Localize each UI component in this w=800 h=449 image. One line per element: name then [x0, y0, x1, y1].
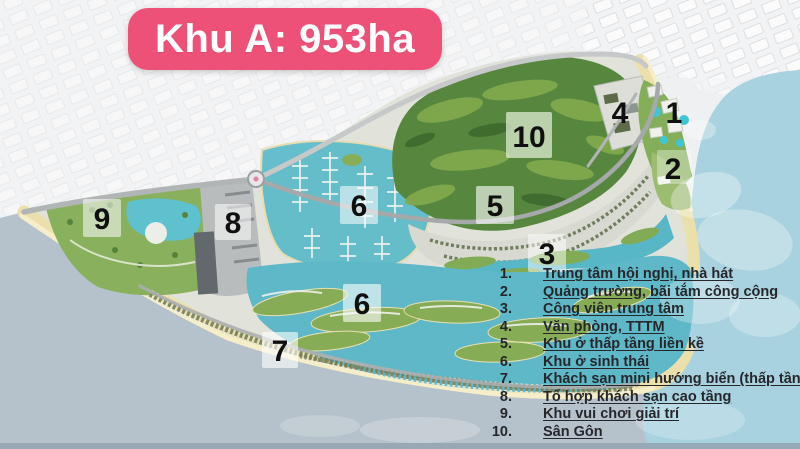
map-marker-8: 8	[225, 207, 242, 240]
legend-item-number: 1.	[484, 266, 512, 282]
legend: 1. Trung tâm hội nghị, nhà hát 2. Quảng …	[484, 266, 796, 441]
legend-item-label: Công viên trung tâm	[543, 301, 684, 317]
legend-item: 2. Quảng trường, bãi tắm công cộng	[484, 284, 796, 302]
legend-item-label: Quảng trường, bãi tắm công cộng	[543, 284, 778, 300]
area-title-text: Khu A: 953ha	[155, 17, 415, 62]
legend-item-label: Trung tâm hội nghị, nhà hát	[543, 266, 733, 282]
legend-item-number: 4.	[484, 319, 512, 335]
legend-item: 10. Sân Gôn	[484, 424, 796, 442]
legend-item-label: Sân Gôn	[543, 424, 603, 440]
legend-item-label: Tổ hợp khách sạn cao tầng	[543, 389, 731, 405]
legend-item-label: Khu ở sinh thái	[543, 354, 649, 370]
legend-item: 7. Khách sạn mini hướng biển (thấp tầng)	[484, 371, 796, 389]
map-marker-5: 5	[487, 190, 504, 223]
map-marker-10: 10	[512, 121, 545, 154]
legend-item-label: Khách sạn mini hướng biển (thấp tầng)	[543, 371, 800, 387]
legend-item-number: 2.	[484, 284, 512, 300]
bottom-border-strip	[0, 443, 800, 449]
area-title-banner: Khu A: 953ha	[128, 8, 442, 70]
legend-item-number: 10.	[484, 424, 512, 440]
legend-item: 5. Khu ở thấp tầng liền kề	[484, 336, 796, 354]
legend-item-label: Khu ở thấp tầng liền kề	[543, 336, 704, 352]
map-marker-1: 1	[666, 97, 683, 130]
legend-item-number: 9.	[484, 406, 512, 422]
legend-item-number: 3.	[484, 301, 512, 317]
legend-item-number: 7.	[484, 371, 512, 387]
legend-item-number: 8.	[484, 389, 512, 405]
legend-item-number: 6.	[484, 354, 512, 370]
legend-item: 1. Trung tâm hội nghị, nhà hát	[484, 266, 796, 284]
legend-item: 3. Công viên trung tâm	[484, 301, 796, 319]
legend-item: 8. Tổ hợp khách sạn cao tầng	[484, 389, 796, 407]
map-marker-4: 4	[612, 97, 629, 130]
map-marker-7: 7	[272, 335, 289, 368]
legend-item: 9. Khu vui chơi giải trí	[484, 406, 796, 424]
legend-item-label: Khu vui chơi giải trí	[543, 406, 679, 422]
legend-item-number: 5.	[484, 336, 512, 352]
legend-item-label: Văn phòng, TTTM	[543, 319, 665, 335]
map-marker-2: 2	[665, 153, 682, 186]
legend-item: 6. Khu ở sinh thái	[484, 354, 796, 372]
map-marker-6b: 6	[354, 288, 371, 321]
legend-item: 4. Văn phòng, TTTM	[484, 319, 796, 337]
map-marker-6a: 6	[351, 190, 368, 223]
map-marker-9: 9	[94, 203, 111, 236]
masterplan-image: 1 2 3 4 5 6 6 7 8 9 10 Khu A: 953ha 1. T…	[0, 0, 800, 449]
